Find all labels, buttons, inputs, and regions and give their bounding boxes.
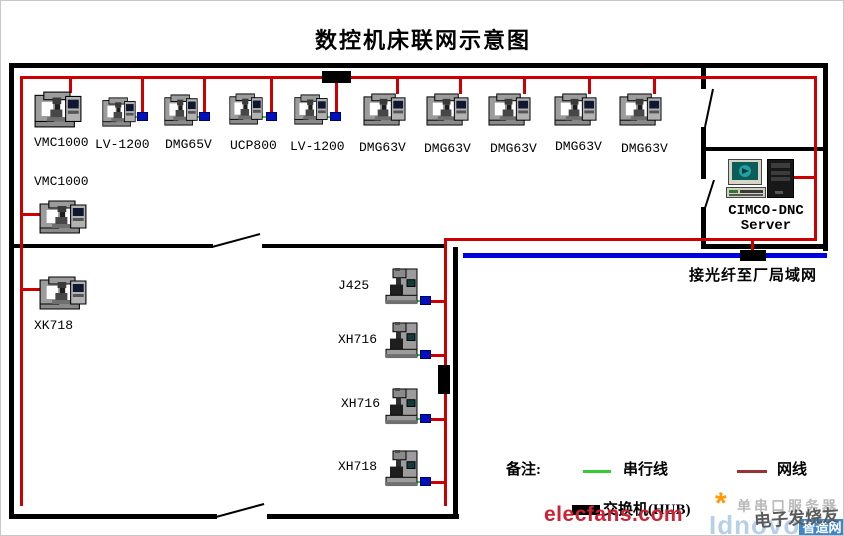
cable-network-drop — [653, 79, 656, 94]
cable-network-stub — [22, 213, 40, 216]
cable-network-stub — [22, 288, 40, 291]
legend-network-label: 网线 — [777, 462, 807, 479]
machine-icon-xh718 — [385, 450, 419, 489]
fiber-label: 接光纤至厂局域网 — [689, 264, 817, 285]
machine-icon-vmc1000 — [34, 91, 82, 128]
legend-serial-label: 串行线 — [623, 462, 668, 479]
machine-label: XH716 — [341, 397, 380, 410]
fiber-connector-box — [740, 250, 766, 261]
machine-icon-dmg63v — [554, 93, 597, 126]
cable-network-stub — [431, 418, 444, 421]
machine-label: XK718 — [34, 319, 73, 332]
cable-network-drop — [588, 79, 591, 94]
serial-converter-box — [420, 350, 431, 359]
serial-converter-box — [330, 112, 341, 121]
cable-network-stub — [431, 354, 444, 357]
server-label-line1: CIMCO-DNC — [701, 204, 831, 219]
machine-icon-ucp800 — [229, 93, 263, 125]
cable-network-stub — [431, 300, 444, 303]
cable-network-drop — [396, 79, 399, 94]
machine-icon-dmg63v — [488, 93, 531, 126]
cable-network-drop — [203, 79, 206, 114]
machine-icon-dmg63v — [619, 93, 662, 126]
diagram-canvas: 数控机床联网示意图 VMC1000LV-1200DMG65VUCP800LV-1… — [0, 0, 844, 536]
watermark-site: elecfans.com — [544, 503, 683, 527]
machine-label: VMC1000 — [34, 175, 89, 188]
machine-label: LV-1200 — [95, 138, 150, 151]
machine-label: XH716 — [338, 333, 377, 346]
machine-icon-lv-1200 — [102, 97, 136, 127]
server-computer-icon — [715, 151, 799, 201]
serial-converter-box — [199, 112, 210, 121]
machine-icon-dmg63v — [363, 93, 406, 126]
machine-label: DMG63V — [359, 141, 406, 154]
machine-label: VMC1000 — [34, 136, 89, 149]
machine-label: DMG63V — [490, 142, 537, 155]
legend-serial-line-swatch — [583, 470, 611, 473]
machine-icon-xh716 — [385, 388, 419, 427]
legend-title: 备注: — [506, 462, 541, 479]
machine-icon-j425 — [385, 268, 419, 307]
server-label: CIMCO-DNC Server — [701, 204, 831, 234]
machine-label: DMG65V — [165, 138, 212, 151]
serial-converter-box — [420, 414, 431, 423]
machine-label: LV-1200 — [290, 140, 345, 153]
machine-icon-xh716 — [385, 322, 419, 361]
cable-network-drop — [523, 79, 526, 94]
hub-middle-switch — [438, 365, 450, 394]
machine-icon-vmc1000 — [39, 200, 87, 234]
legend-network-line-swatch — [737, 470, 767, 473]
machine-label: J425 — [338, 279, 369, 292]
cable-network-drop — [270, 79, 273, 114]
serial-converter-box — [137, 112, 148, 121]
machine-label: DMG63V — [555, 140, 602, 153]
serial-converter-box — [266, 112, 277, 121]
machine-label: DMG63V — [621, 142, 668, 155]
cable-network-drop — [335, 81, 338, 114]
machine-icon-dmg65v — [164, 94, 198, 126]
cable-network-drop — [141, 79, 144, 115]
machine-label: UCP800 — [230, 139, 277, 152]
serial-converter-box — [420, 477, 431, 486]
machine-label: XH718 — [338, 460, 377, 473]
server-label-line2: Server — [701, 219, 831, 234]
hub-top-switch — [322, 71, 351, 83]
machine-label: DMG63V — [424, 142, 471, 155]
cable-network-drop — [459, 79, 462, 94]
machine-icon-lv-1200 — [294, 94, 328, 125]
machine-icon-dmg63v — [426, 93, 469, 126]
serial-converter-box — [420, 296, 431, 305]
machine-icon-xk718 — [39, 276, 87, 310]
fiber-optic-line — [463, 253, 827, 258]
cable-network-stub — [431, 481, 444, 484]
